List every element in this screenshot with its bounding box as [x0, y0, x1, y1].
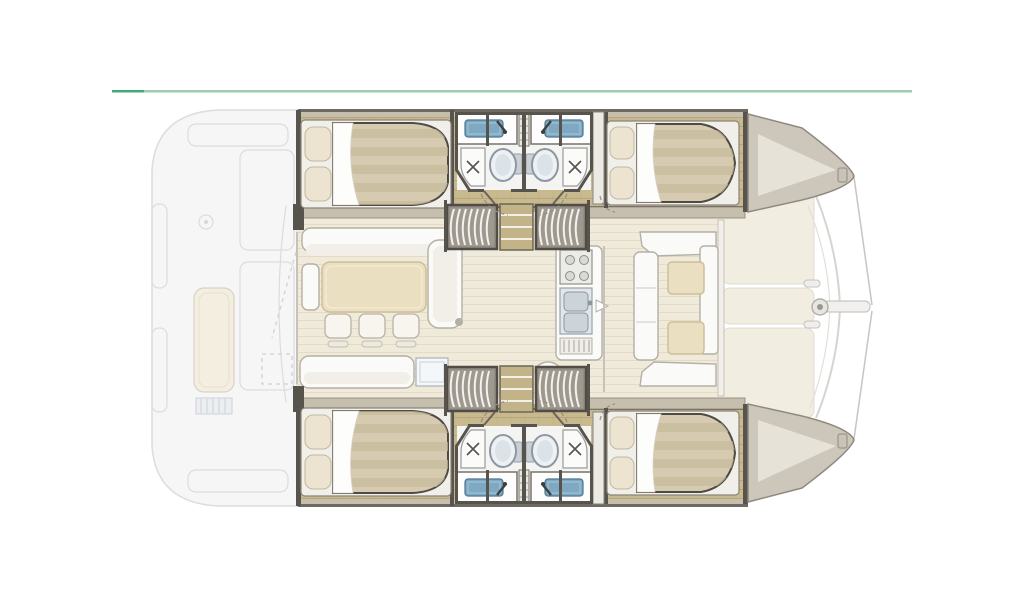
- divider-line-accent: [112, 90, 144, 93]
- dining-table: [322, 262, 426, 312]
- side-bench: [302, 264, 319, 310]
- chaise-seat: [304, 372, 410, 384]
- dish-rack: [560, 338, 592, 354]
- hull-trim-band: [296, 207, 449, 218]
- bobstay-line: [854, 311, 872, 439]
- aft-bulkhead-foot: [293, 204, 304, 230]
- cockpit-bench-cushion: [194, 288, 234, 392]
- dinette-table: [668, 262, 704, 294]
- cockpit-exterior: Aft cockpit and transom steps (exterior,…: [152, 110, 312, 506]
- sink-basin: [564, 313, 588, 332]
- aft-bulkhead: [296, 110, 301, 210]
- hull-trim-band: [584, 207, 745, 218]
- beam-cleat: [804, 280, 820, 287]
- stool: [325, 314, 351, 338]
- floorplan-canvas: Horizontal accent rule above the plan Af…: [0, 0, 1024, 600]
- dinette-bench: [640, 362, 716, 386]
- foredeck-locker: [722, 288, 814, 324]
- settee-return-cushion: [433, 246, 457, 322]
- stool-foot: [396, 341, 416, 347]
- bobstay-line: [854, 177, 872, 305]
- divider-rule: Horizontal accent rule above the plan: [112, 90, 912, 93]
- catamaran-floorplan-page: Horizontal accent rule above the plan Af…: [0, 0, 1024, 600]
- forward-window-wall: [718, 220, 724, 396]
- stair-wing-wall: [444, 200, 447, 252]
- hull-bathrooms: [455, 112, 593, 204]
- dinette-bench-side: [634, 252, 658, 360]
- beam-cleat: [804, 321, 820, 328]
- companionway-stairs-aft: [447, 205, 497, 249]
- bowsprit: [824, 301, 870, 312]
- aft-cabin-bed: [301, 120, 451, 208]
- stool-foot: [328, 341, 348, 347]
- winch-center: [204, 220, 208, 224]
- dinette-table: [668, 322, 704, 354]
- bow-cleat: [838, 168, 847, 182]
- galley-faucet: [588, 301, 593, 306]
- stair-wing-wall: [587, 200, 590, 252]
- stool: [359, 314, 385, 338]
- forward-cabin-bed: [607, 121, 739, 205]
- divider-line: [112, 90, 912, 93]
- hanging-locker: [593, 112, 604, 204]
- companionway-stairs-forward: [536, 205, 586, 249]
- sink-basin: [564, 292, 588, 311]
- stool-group: [325, 314, 419, 347]
- stool: [393, 314, 419, 338]
- anchor-fitting-center: [817, 304, 823, 310]
- stool-foot: [362, 341, 382, 347]
- settee-knob: [455, 318, 463, 326]
